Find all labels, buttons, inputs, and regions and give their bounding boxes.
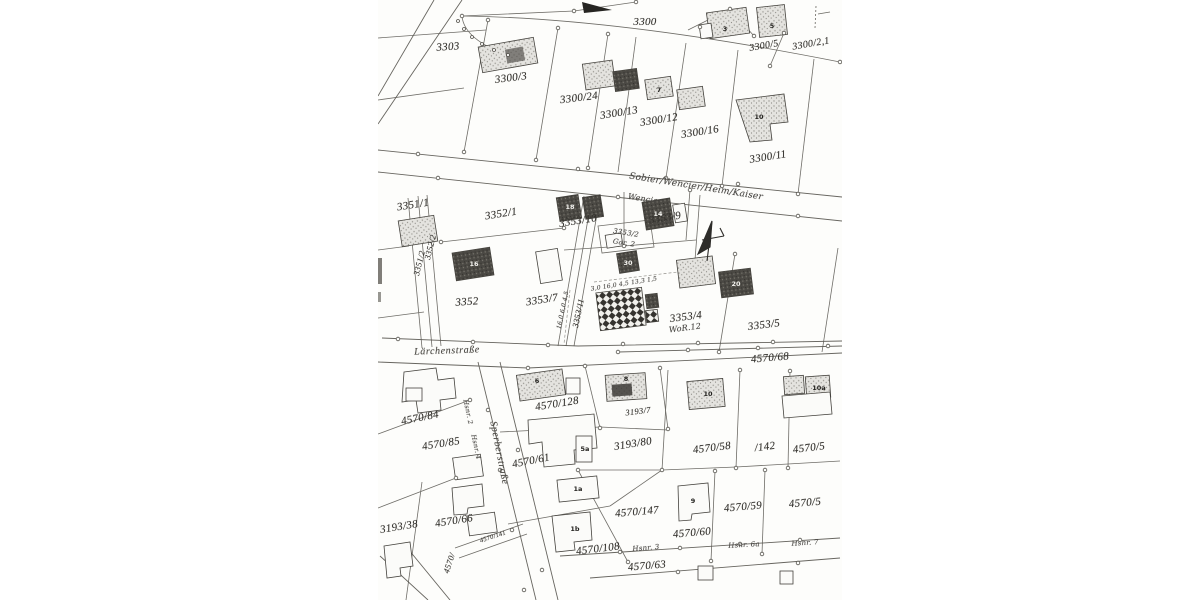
handwritten-hsnr-note: Hsnr. 7 [791, 538, 818, 547]
house-number: 6 [535, 377, 540, 385]
buildings-layer [384, 5, 832, 584]
map-canvas: 3300 3300/5 3300/2,1 3303 3300/3 3300/24… [378, 0, 842, 600]
house-number: 3 [723, 25, 728, 33]
house-number: 18 [565, 203, 574, 211]
house-number: 10 [703, 390, 712, 398]
house-number: 7 [657, 86, 662, 94]
map-line-work [378, 0, 842, 600]
house-number: 5a [581, 445, 590, 453]
house-number: 8 [624, 375, 629, 383]
parcel-label: /142 [754, 440, 776, 454]
scan-page: 3300 3300/5 3300/2,1 3303 3300/3 3300/24… [0, 0, 1200, 600]
house-number: 9 [691, 497, 696, 505]
street-label-laerchenstrasse: Lärchenstraße [414, 344, 480, 357]
house-number: 16 [469, 260, 478, 268]
house-number: 1a [574, 485, 583, 493]
house-number: 5 [770, 22, 775, 30]
house-number: 14 [653, 210, 662, 218]
house-number: 20 [731, 280, 740, 288]
handwritten-hsnr-note: Hsnr. 6a [728, 540, 760, 550]
house-number: 30 [623, 259, 632, 267]
north-arrow-icon [698, 221, 724, 261]
parcel-label: 3303 [436, 40, 460, 54]
house-number: 10 [754, 113, 763, 121]
house-number: 1b [570, 525, 579, 533]
parcel-label: 3352 [455, 295, 479, 309]
house-number: 10a [812, 384, 825, 392]
parcel-label: 3300 [633, 16, 656, 28]
